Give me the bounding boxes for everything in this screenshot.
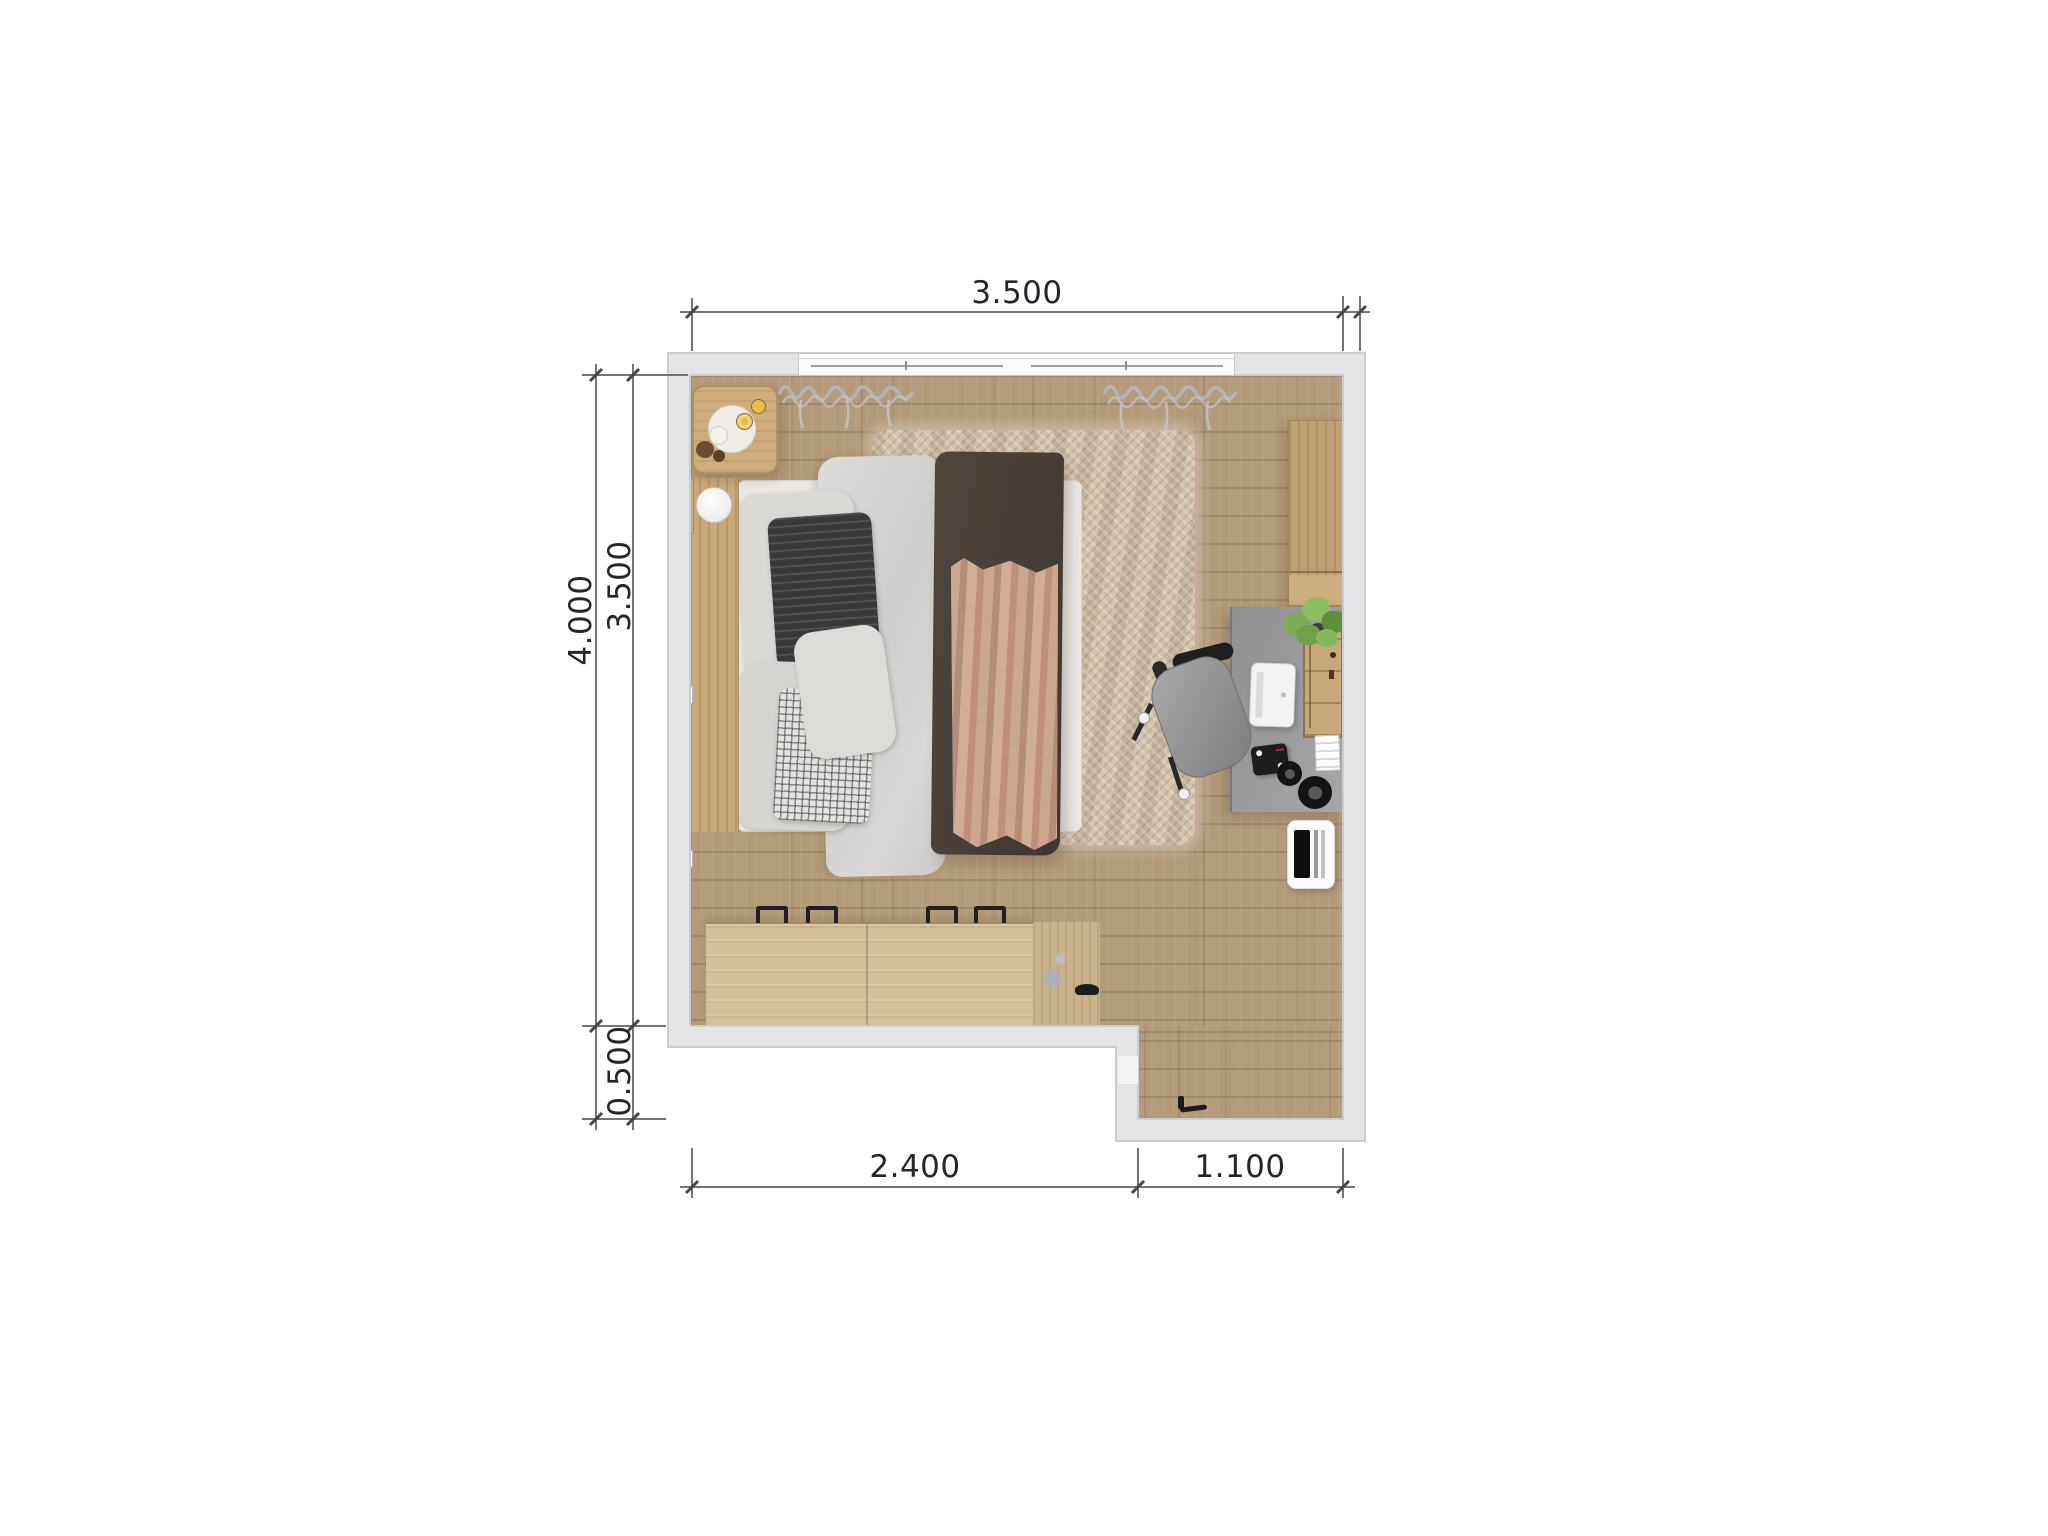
dresser-handle-1: [756, 906, 788, 923]
curtain-right: [1100, 378, 1246, 436]
wardrobe[interactable]: [1288, 420, 1345, 606]
dim-bottom-left-width: 2.400: [850, 1150, 980, 1184]
floor-plan-canvas: 3.500 4.000 3.500 0.500 2.400 1.100: [0, 0, 2048, 1536]
wall-socket-lower: [683, 850, 693, 868]
wall-socket-upper: [683, 686, 693, 704]
flower-twig-2: [713, 450, 725, 462]
bed-headboard: [690, 478, 739, 832]
decor-sprig: [1039, 966, 1065, 992]
office-chair[interactable]: [1128, 640, 1244, 798]
window-sash-left: [811, 365, 1003, 367]
window: [798, 353, 1235, 376]
dim-left-total-height: 4.000: [564, 555, 598, 685]
flower-twig-1: [696, 441, 714, 458]
wall-opening: [1118, 1056, 1138, 1084]
pillow-small-gray: [792, 622, 899, 761]
dim-bottom-right-width: 1.100: [1175, 1150, 1305, 1184]
dresser-handle-3: [926, 906, 958, 923]
headphone-large[interactable]: [1298, 776, 1332, 809]
paper-stack: [1314, 735, 1340, 772]
window-latch-right: [1125, 361, 1127, 370]
potted-plant[interactable]: [1282, 595, 1352, 663]
flower-white: [709, 426, 728, 445]
window-sash-right: [1031, 365, 1223, 367]
window-latch-left: [905, 361, 907, 370]
flower-yellow-2: [751, 399, 766, 414]
white-appliance: [1287, 820, 1335, 889]
decor-bowl: [1075, 984, 1099, 995]
dim-top-width: 3.500: [952, 276, 1082, 310]
door-handle[interactable]: [1176, 1092, 1210, 1118]
dresser-handle-2: [806, 906, 838, 923]
dresser-right-section: [1033, 922, 1100, 1026]
sphere-lamp[interactable]: [696, 487, 732, 523]
curtain-left: [775, 378, 923, 432]
dim-left-nook-height: 0.500: [603, 1006, 637, 1136]
floor-extension: [1138, 1026, 1343, 1119]
dresser-handle-4: [974, 906, 1006, 923]
dim-left-room-height: 3.500: [603, 521, 637, 651]
bed-throw-tan: [951, 558, 1058, 850]
flower-yellow-1: [736, 413, 753, 430]
decor-sprig-2: [1053, 952, 1067, 966]
laptop[interactable]: [1249, 662, 1296, 728]
headboard-shelf: [678, 478, 694, 534]
dresser[interactable]: [706, 922, 1033, 1028]
headphone-small[interactable]: [1277, 761, 1302, 786]
